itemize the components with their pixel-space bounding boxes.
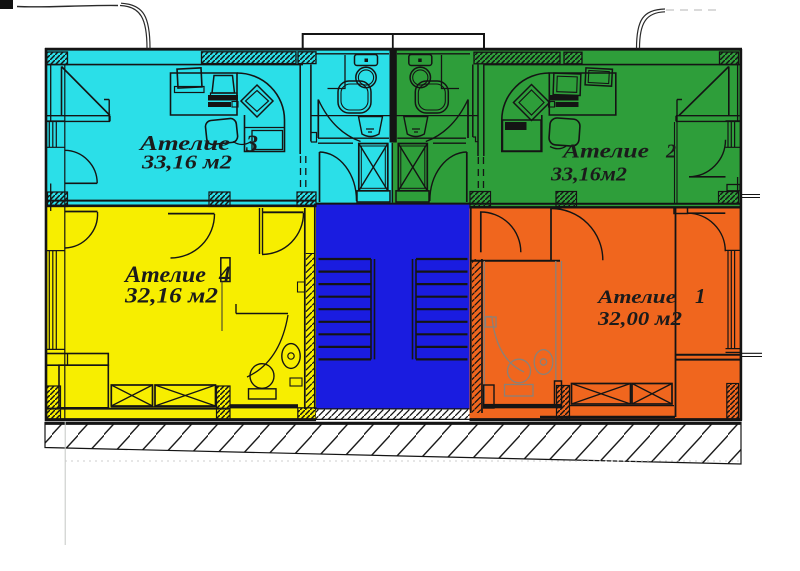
svg-text:1: 1	[695, 284, 706, 308]
svg-text:Ателие: Ателие	[560, 141, 649, 163]
svg-text:3: 3	[245, 132, 258, 158]
svg-text:4: 4	[218, 262, 231, 287]
svg-text:32,00 м2: 32,00 м2	[597, 308, 682, 330]
svg-text:33,16м2: 33,16м2	[550, 164, 627, 186]
svg-text:32,16 м2: 32,16 м2	[124, 283, 218, 308]
svg-text:Ателие: Ателие	[597, 287, 677, 308]
svg-text:2: 2	[665, 141, 676, 163]
svg-text:33,16 м2: 33,16 м2	[141, 152, 232, 174]
